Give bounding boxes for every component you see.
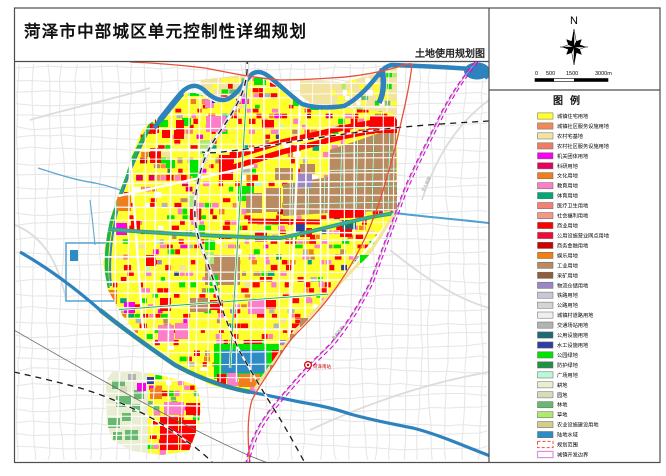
svg-text:社会福利用地: 社会福利用地 (557, 212, 588, 220)
svg-text:农村宅基地: 农村宅基地 (557, 132, 583, 140)
svg-text:林地: 林地 (557, 401, 567, 409)
svg-text:科研用地: 科研用地 (557, 162, 578, 170)
svg-text:耕地: 耕地 (557, 381, 567, 389)
svg-text:体育用地: 体育用地 (557, 192, 578, 200)
svg-text:交通场站用地: 交通场站用地 (557, 321, 588, 329)
svg-text:防护绿地: 防护绿地 (557, 361, 578, 369)
svg-text:500: 500 (546, 71, 555, 77)
svg-text:公园绿地: 公园绿地 (557, 351, 578, 359)
svg-text:工业用地: 工业用地 (557, 261, 578, 269)
svg-text:物流仓储用地: 物流仓储用地 (557, 281, 588, 289)
svg-text:农村社区服务设施用地: 农村社区服务设施用地 (557, 142, 609, 150)
svg-text:城镇开发边界: 城镇开发边界 (557, 451, 588, 459)
svg-text:机关团体用地: 机关团体用地 (557, 152, 588, 160)
svg-text:教育用地: 教育用地 (557, 182, 578, 190)
svg-text:商务金融用地: 商务金融用地 (557, 241, 588, 249)
svg-text:0: 0 (535, 71, 538, 77)
svg-text:广场用地: 广场用地 (557, 371, 578, 379)
svg-text:公路用地: 公路用地 (557, 301, 578, 309)
svg-text:采矿用地: 采矿用地 (557, 271, 578, 279)
svg-text:土地使用规划图: 土地使用规划图 (415, 47, 485, 60)
svg-text:菏泽南站: 菏泽南站 (313, 363, 331, 370)
svg-text:草地: 草地 (557, 411, 567, 419)
svg-text:娱乐用地: 娱乐用地 (557, 251, 578, 259)
svg-text:菏泽市中部城区单元控制性详细规划: 菏泽市中部城区单元控制性详细规划 (24, 21, 307, 41)
svg-text:公用设施用地: 公用设施用地 (557, 331, 588, 339)
svg-text:城镇村道路用地: 城镇村道路用地 (557, 311, 593, 319)
svg-text:医疗卫生用地: 医疗卫生用地 (557, 202, 588, 210)
svg-text:图例: 图例 (553, 94, 587, 107)
svg-text:陆地水域: 陆地水域 (557, 431, 578, 439)
svg-text:铁路用地: 铁路用地 (557, 291, 578, 299)
svg-text:商业用地: 商业用地 (557, 222, 578, 230)
svg-text:文化用地: 文化用地 (557, 172, 578, 180)
svg-text:水工设施用地: 水工设施用地 (557, 341, 588, 349)
svg-text:农业设施建设用地: 农业设施建设用地 (557, 421, 599, 429)
svg-text:N: N (570, 15, 578, 27)
svg-text:3000m: 3000m (595, 71, 612, 77)
svg-text:城镇住宅用地: 城镇住宅用地 (557, 112, 588, 120)
svg-text:公用设施营业网点用地: 公用设施营业网点用地 (557, 232, 609, 240)
svg-text:规划范围: 规划范围 (557, 441, 578, 449)
svg-text:1500: 1500 (566, 71, 578, 77)
svg-text:园地: 园地 (557, 391, 567, 399)
svg-text:城镇社区服务设施用地: 城镇社区服务设施用地 (557, 122, 609, 130)
